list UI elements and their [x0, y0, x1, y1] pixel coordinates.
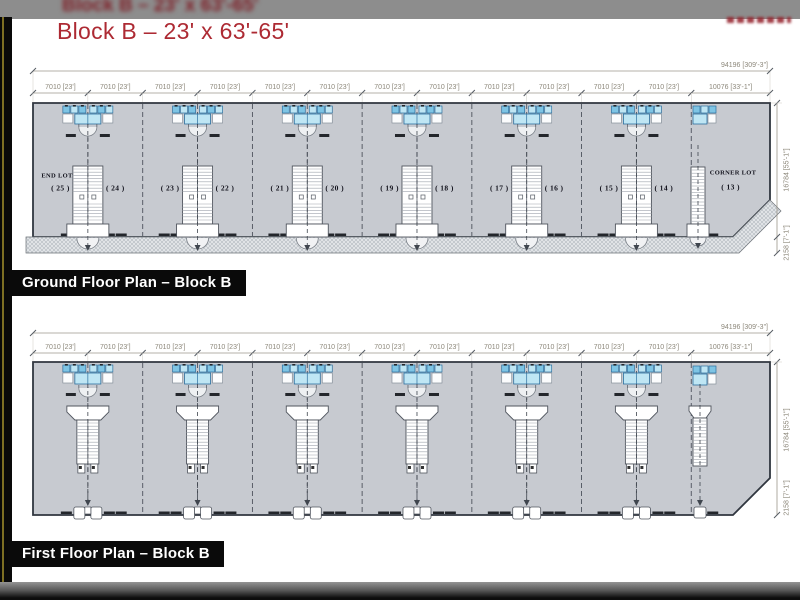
- balcony-fixture: [639, 507, 650, 519]
- fixture: [392, 365, 399, 372]
- fixture-tap: [531, 364, 534, 366]
- wc: [708, 114, 716, 123]
- fixture: [200, 365, 207, 372]
- door-mark: [390, 512, 401, 515]
- fixture-tap: [410, 105, 413, 107]
- door-mark: [378, 512, 389, 515]
- fixture-tap: [175, 364, 178, 366]
- door-mark: [104, 512, 115, 515]
- door-mark: [445, 234, 456, 237]
- wc: [322, 373, 332, 383]
- door-mark: [609, 512, 620, 515]
- door-mark: [598, 234, 609, 237]
- fixture: [646, 365, 653, 372]
- fixture-tap: [547, 105, 550, 107]
- door-mark: [664, 234, 675, 237]
- balcony-fixture: [633, 507, 639, 514]
- wc: [432, 373, 442, 383]
- fixture: [216, 365, 223, 372]
- fixture: [400, 365, 407, 372]
- balcony-fixture: [622, 507, 633, 519]
- door-mark: [214, 512, 225, 515]
- fixture-tap: [210, 364, 213, 366]
- fixture: [646, 106, 653, 113]
- fixture: [309, 365, 316, 372]
- fixture: [282, 106, 289, 113]
- fixture: [638, 106, 645, 113]
- fixture: [298, 106, 305, 113]
- door-mark: [66, 393, 76, 396]
- fixture: [419, 365, 426, 372]
- fixture: [502, 365, 509, 372]
- fixture: [173, 106, 180, 113]
- fixture: [518, 106, 525, 113]
- fixture: [325, 106, 332, 113]
- fixture-tap: [327, 364, 330, 366]
- fixture-tap: [520, 364, 523, 366]
- door-mark: [335, 234, 346, 237]
- door-mark: [488, 512, 499, 515]
- fixture: [502, 106, 509, 113]
- door-mark: [116, 234, 127, 237]
- fixture: [611, 106, 618, 113]
- post: [408, 466, 411, 469]
- balcony-fixture: [293, 507, 304, 519]
- fixture-tap: [292, 105, 295, 107]
- balcony-fixture: [74, 507, 85, 519]
- fixture: [63, 106, 70, 113]
- fixture-tap: [504, 105, 507, 107]
- fixture-tap: [394, 364, 397, 366]
- fixture-tap: [183, 364, 186, 366]
- fixture: [200, 106, 207, 113]
- fixture: [537, 365, 544, 372]
- wc: [432, 114, 442, 123]
- fixture: [619, 365, 626, 372]
- fixture-tap: [402, 105, 405, 107]
- door-mark: [395, 393, 405, 396]
- ground-floor-plan-label: Ground Floor Plan – Block B: [8, 270, 246, 296]
- fixture-tap: [547, 364, 550, 366]
- fixture: [79, 106, 86, 113]
- post: [627, 466, 630, 469]
- fixture: [693, 366, 700, 373]
- fixture-tap: [191, 105, 194, 107]
- door-mark: [500, 512, 511, 515]
- wc: [392, 373, 402, 383]
- fixture-tap: [656, 105, 659, 107]
- door-mark: [433, 512, 444, 515]
- fixture: [173, 365, 180, 372]
- post: [189, 466, 192, 469]
- bath: [693, 114, 707, 124]
- fixture-tap: [539, 105, 542, 107]
- fixture: [216, 106, 223, 113]
- fixture-tap: [300, 364, 303, 366]
- wc: [103, 114, 113, 123]
- door-mark: [176, 134, 186, 137]
- fixture-tap: [292, 364, 295, 366]
- balcony-fixture: [91, 507, 102, 519]
- door-mark: [116, 512, 127, 515]
- fixture: [90, 365, 97, 372]
- fixture: [71, 365, 78, 372]
- fixture: [408, 365, 415, 372]
- fixture: [510, 365, 517, 372]
- wc: [392, 114, 402, 123]
- fixture-tap: [539, 364, 542, 366]
- door-mark: [323, 512, 334, 515]
- door-mark: [652, 512, 663, 515]
- door-mark: [285, 393, 295, 396]
- fixture: [79, 365, 86, 372]
- fixture: [709, 366, 716, 373]
- fixture-tap: [300, 105, 303, 107]
- post: [640, 466, 643, 469]
- fixture-tap: [648, 105, 651, 107]
- fixture-tap: [402, 364, 405, 366]
- wc: [651, 114, 661, 123]
- fixture: [701, 366, 708, 373]
- fixture: [654, 106, 661, 113]
- fixture: [435, 365, 442, 372]
- door-mark: [543, 512, 554, 515]
- door-mark: [268, 512, 279, 515]
- fixture-tap: [410, 364, 413, 366]
- door-mark: [648, 393, 658, 396]
- fixture: [545, 365, 552, 372]
- fixture-tap: [640, 364, 643, 366]
- door-mark: [555, 512, 566, 515]
- door-mark: [614, 134, 624, 137]
- fixture: [693, 106, 700, 113]
- wc: [611, 114, 621, 123]
- fixture-tap: [81, 364, 84, 366]
- balcony-fixture: [403, 507, 414, 519]
- wc: [502, 373, 512, 383]
- fixture-tap: [520, 105, 523, 107]
- fixture: [63, 365, 70, 372]
- bottom-band: [0, 582, 800, 600]
- fixture-tap: [640, 105, 643, 107]
- door-mark: [268, 234, 279, 237]
- fixture-tap: [629, 105, 632, 107]
- door-mark: [707, 512, 718, 515]
- fixture-tap: [437, 364, 440, 366]
- balcony-fixture: [195, 507, 201, 514]
- balcony-fixture: [184, 507, 195, 519]
- fixture: [435, 106, 442, 113]
- door-mark: [555, 234, 566, 237]
- door-mark: [280, 512, 291, 515]
- fixture: [427, 365, 434, 372]
- fixture-tap: [311, 105, 314, 107]
- fixture: [529, 365, 536, 372]
- door-mark: [176, 393, 186, 396]
- door-mark: [159, 512, 170, 515]
- door-mark: [539, 393, 549, 396]
- fixture: [298, 365, 305, 372]
- door-mark: [614, 393, 624, 396]
- door-mark: [505, 393, 515, 396]
- fixture: [654, 365, 661, 372]
- fixture-tap: [613, 105, 616, 107]
- wc: [63, 373, 73, 383]
- wc: [322, 114, 332, 123]
- fixture: [181, 106, 188, 113]
- fixture-tap: [512, 105, 515, 107]
- fixture-tap: [311, 364, 314, 366]
- fixture: [71, 106, 78, 113]
- post: [518, 466, 521, 469]
- fixture: [181, 365, 188, 372]
- fixture-tap: [429, 105, 432, 107]
- fixture: [282, 365, 289, 372]
- fixture-tap: [92, 364, 95, 366]
- fixture-tap: [100, 364, 103, 366]
- wc: [63, 114, 73, 123]
- balcony-fixture: [694, 507, 706, 518]
- fixture: [106, 106, 113, 113]
- fixture-tap: [319, 364, 322, 366]
- ground-floor-plan: [26, 68, 782, 256]
- balcony-fixture: [530, 507, 541, 519]
- door-mark: [285, 134, 295, 137]
- wc: [542, 114, 552, 123]
- door-mark: [648, 134, 658, 137]
- fixture-tap: [504, 364, 507, 366]
- fixture-tap: [202, 105, 205, 107]
- wc: [213, 114, 223, 123]
- wc: [282, 114, 292, 123]
- fixture-tap: [512, 364, 515, 366]
- door-mark: [429, 393, 439, 396]
- post: [421, 466, 424, 469]
- fixture: [709, 106, 716, 113]
- fixture-tap: [218, 105, 221, 107]
- fixture: [510, 106, 517, 113]
- fixture-tap: [284, 364, 287, 366]
- fixture: [90, 106, 97, 113]
- door-mark: [664, 512, 675, 515]
- fixture: [419, 106, 426, 113]
- door-mark: [539, 134, 549, 137]
- fixture-tap: [327, 105, 330, 107]
- fixture: [317, 106, 324, 113]
- balcony-fixture: [420, 507, 431, 519]
- wc: [173, 373, 183, 383]
- fixture-tap: [65, 105, 68, 107]
- door-mark: [66, 134, 76, 137]
- fixture: [317, 365, 324, 372]
- post: [79, 466, 82, 469]
- door-mark: [488, 234, 499, 237]
- wc: [213, 373, 223, 383]
- door-mark: [159, 234, 170, 237]
- balcony-fixture: [414, 507, 420, 514]
- fixture: [518, 365, 525, 372]
- fixture: [701, 106, 708, 113]
- fixture-tap: [648, 364, 651, 366]
- post: [202, 466, 205, 469]
- fixture: [290, 365, 297, 372]
- fixture-tap: [81, 105, 84, 107]
- fixture-tap: [437, 105, 440, 107]
- fixture: [529, 106, 536, 113]
- door-mark: [598, 512, 609, 515]
- fixture: [325, 365, 332, 372]
- door-mark: [225, 512, 236, 515]
- door-mark: [225, 234, 236, 237]
- door-mark: [210, 393, 220, 396]
- fixture-tap: [613, 364, 616, 366]
- door-mark: [61, 512, 72, 515]
- fixture-tap: [531, 105, 534, 107]
- fixture: [208, 106, 215, 113]
- fixture: [98, 106, 105, 113]
- fixture: [611, 365, 618, 372]
- first-floor-plan-label: First Floor Plan – Block B: [8, 541, 224, 567]
- door-mark: [100, 393, 110, 396]
- fixture: [309, 106, 316, 113]
- fixture-tap: [183, 105, 186, 107]
- wc: [173, 114, 183, 123]
- door-mark: [335, 512, 346, 515]
- door-mark: [319, 134, 329, 137]
- wc: [708, 374, 716, 384]
- fixture: [208, 365, 215, 372]
- bath: [693, 374, 707, 385]
- fixture-tap: [284, 105, 287, 107]
- fixture: [427, 106, 434, 113]
- fixture-tap: [92, 105, 95, 107]
- fixture: [98, 365, 105, 372]
- balcony-fixture: [310, 507, 321, 519]
- fixture: [106, 365, 113, 372]
- door-mark: [171, 512, 182, 515]
- balcony-fixture: [201, 507, 212, 519]
- post: [531, 466, 534, 469]
- fixture-tap: [202, 364, 205, 366]
- fixture-tap: [621, 105, 624, 107]
- fixture-tap: [629, 364, 632, 366]
- fixture: [638, 365, 645, 372]
- fixture: [545, 106, 552, 113]
- wc: [282, 373, 292, 383]
- door-mark: [505, 134, 515, 137]
- fixture: [189, 365, 196, 372]
- fixture-tap: [73, 105, 76, 107]
- wc: [611, 373, 621, 383]
- wc: [103, 373, 113, 383]
- fixture-tap: [218, 364, 221, 366]
- floor-plans-canvas: [0, 0, 800, 600]
- balcony-fixture: [304, 507, 310, 514]
- fixture-tap: [108, 364, 111, 366]
- post: [92, 466, 95, 469]
- fixture-tap: [73, 364, 76, 366]
- door-mark: [210, 134, 220, 137]
- balcony-fixture: [85, 507, 91, 514]
- door-mark: [378, 234, 389, 237]
- fixture: [537, 106, 544, 113]
- fixture-tap: [175, 105, 178, 107]
- fixture: [400, 106, 407, 113]
- wc: [651, 373, 661, 383]
- fixture-tap: [621, 364, 624, 366]
- fixture-tap: [394, 105, 397, 107]
- fixture-tap: [65, 364, 68, 366]
- door-mark: [100, 134, 110, 137]
- fixture-tap: [108, 105, 111, 107]
- fixture: [290, 106, 297, 113]
- fixture-tap: [429, 364, 432, 366]
- fixture: [189, 106, 196, 113]
- fixture-tap: [656, 364, 659, 366]
- door-mark: [429, 134, 439, 137]
- balcony-fixture: [524, 507, 530, 514]
- door-mark: [445, 512, 456, 515]
- door-mark: [395, 134, 405, 137]
- fixture-tap: [210, 105, 213, 107]
- fixture-tap: [100, 105, 103, 107]
- fixture-tap: [421, 105, 424, 107]
- post: [298, 466, 301, 469]
- post: [311, 466, 314, 469]
- fixture-tap: [421, 364, 424, 366]
- slide: Block B – 23' x 63'-65' Block B – 23' x …: [0, 0, 800, 600]
- fixture: [408, 106, 415, 113]
- wc: [542, 373, 552, 383]
- fixture-tap: [191, 364, 194, 366]
- wc: [502, 114, 512, 123]
- door-mark: [319, 393, 329, 396]
- fixture: [619, 106, 626, 113]
- first-floor-plan: [30, 330, 782, 519]
- fixture: [392, 106, 399, 113]
- balcony-fixture: [513, 507, 524, 519]
- fixture: [627, 106, 634, 113]
- plan-outline: [33, 362, 770, 515]
- fixture: [627, 365, 634, 372]
- fixture-tap: [319, 105, 322, 107]
